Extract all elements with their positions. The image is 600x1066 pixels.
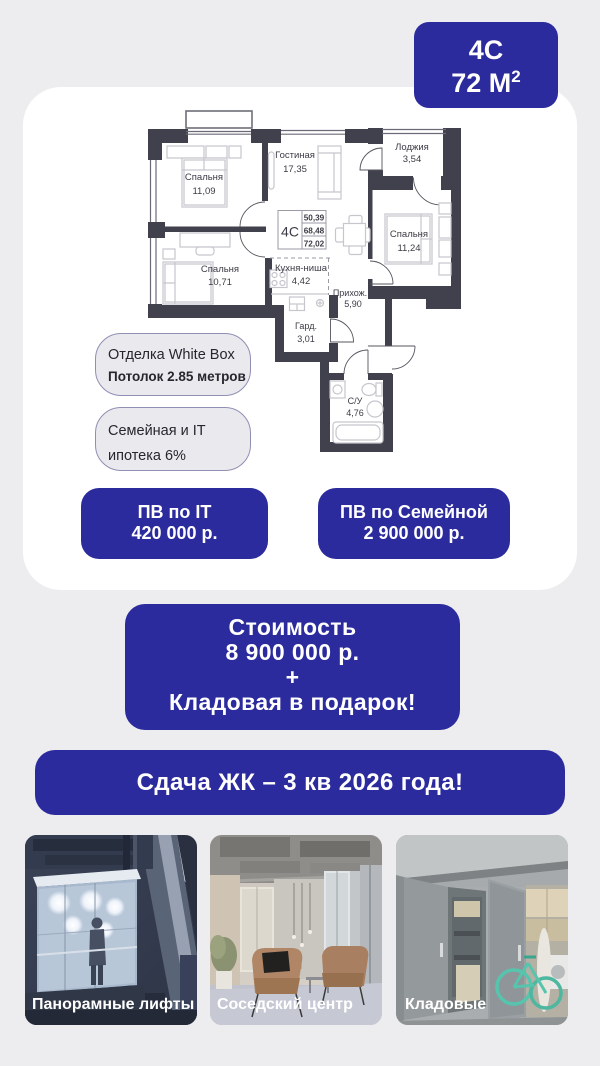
svg-text:Прихож.: Прихож.: [333, 288, 367, 298]
svg-text:10,71: 10,71: [208, 277, 232, 288]
svg-text:72,02: 72,02: [304, 240, 325, 249]
svg-text:68,48: 68,48: [304, 227, 325, 236]
svg-text:11,24: 11,24: [397, 243, 420, 254]
svg-text:3,54: 3,54: [403, 154, 422, 165]
svg-text:4,42: 4,42: [292, 276, 311, 287]
svg-text:С/У: С/У: [348, 396, 363, 406]
svg-text:3,01: 3,01: [297, 334, 315, 344]
svg-text:Спальня: Спальня: [390, 229, 428, 240]
svg-text:Гостиная: Гостиная: [275, 150, 315, 161]
svg-text:4,76: 4,76: [346, 408, 364, 418]
svg-text:Спальня: Спальня: [185, 172, 223, 183]
svg-text:17,35: 17,35: [283, 164, 307, 175]
svg-text:Лоджия: Лоджия: [395, 142, 429, 153]
svg-text:50,39: 50,39: [304, 214, 325, 223]
svg-text:Гард.: Гард.: [295, 321, 317, 331]
svg-text:5,90: 5,90: [344, 299, 362, 309]
svg-text:Кухня-ниша: Кухня-ниша: [275, 263, 328, 274]
svg-text:4С: 4С: [281, 224, 299, 240]
svg-text:11,09: 11,09: [192, 186, 215, 197]
svg-text:Спальня: Спальня: [201, 264, 239, 275]
